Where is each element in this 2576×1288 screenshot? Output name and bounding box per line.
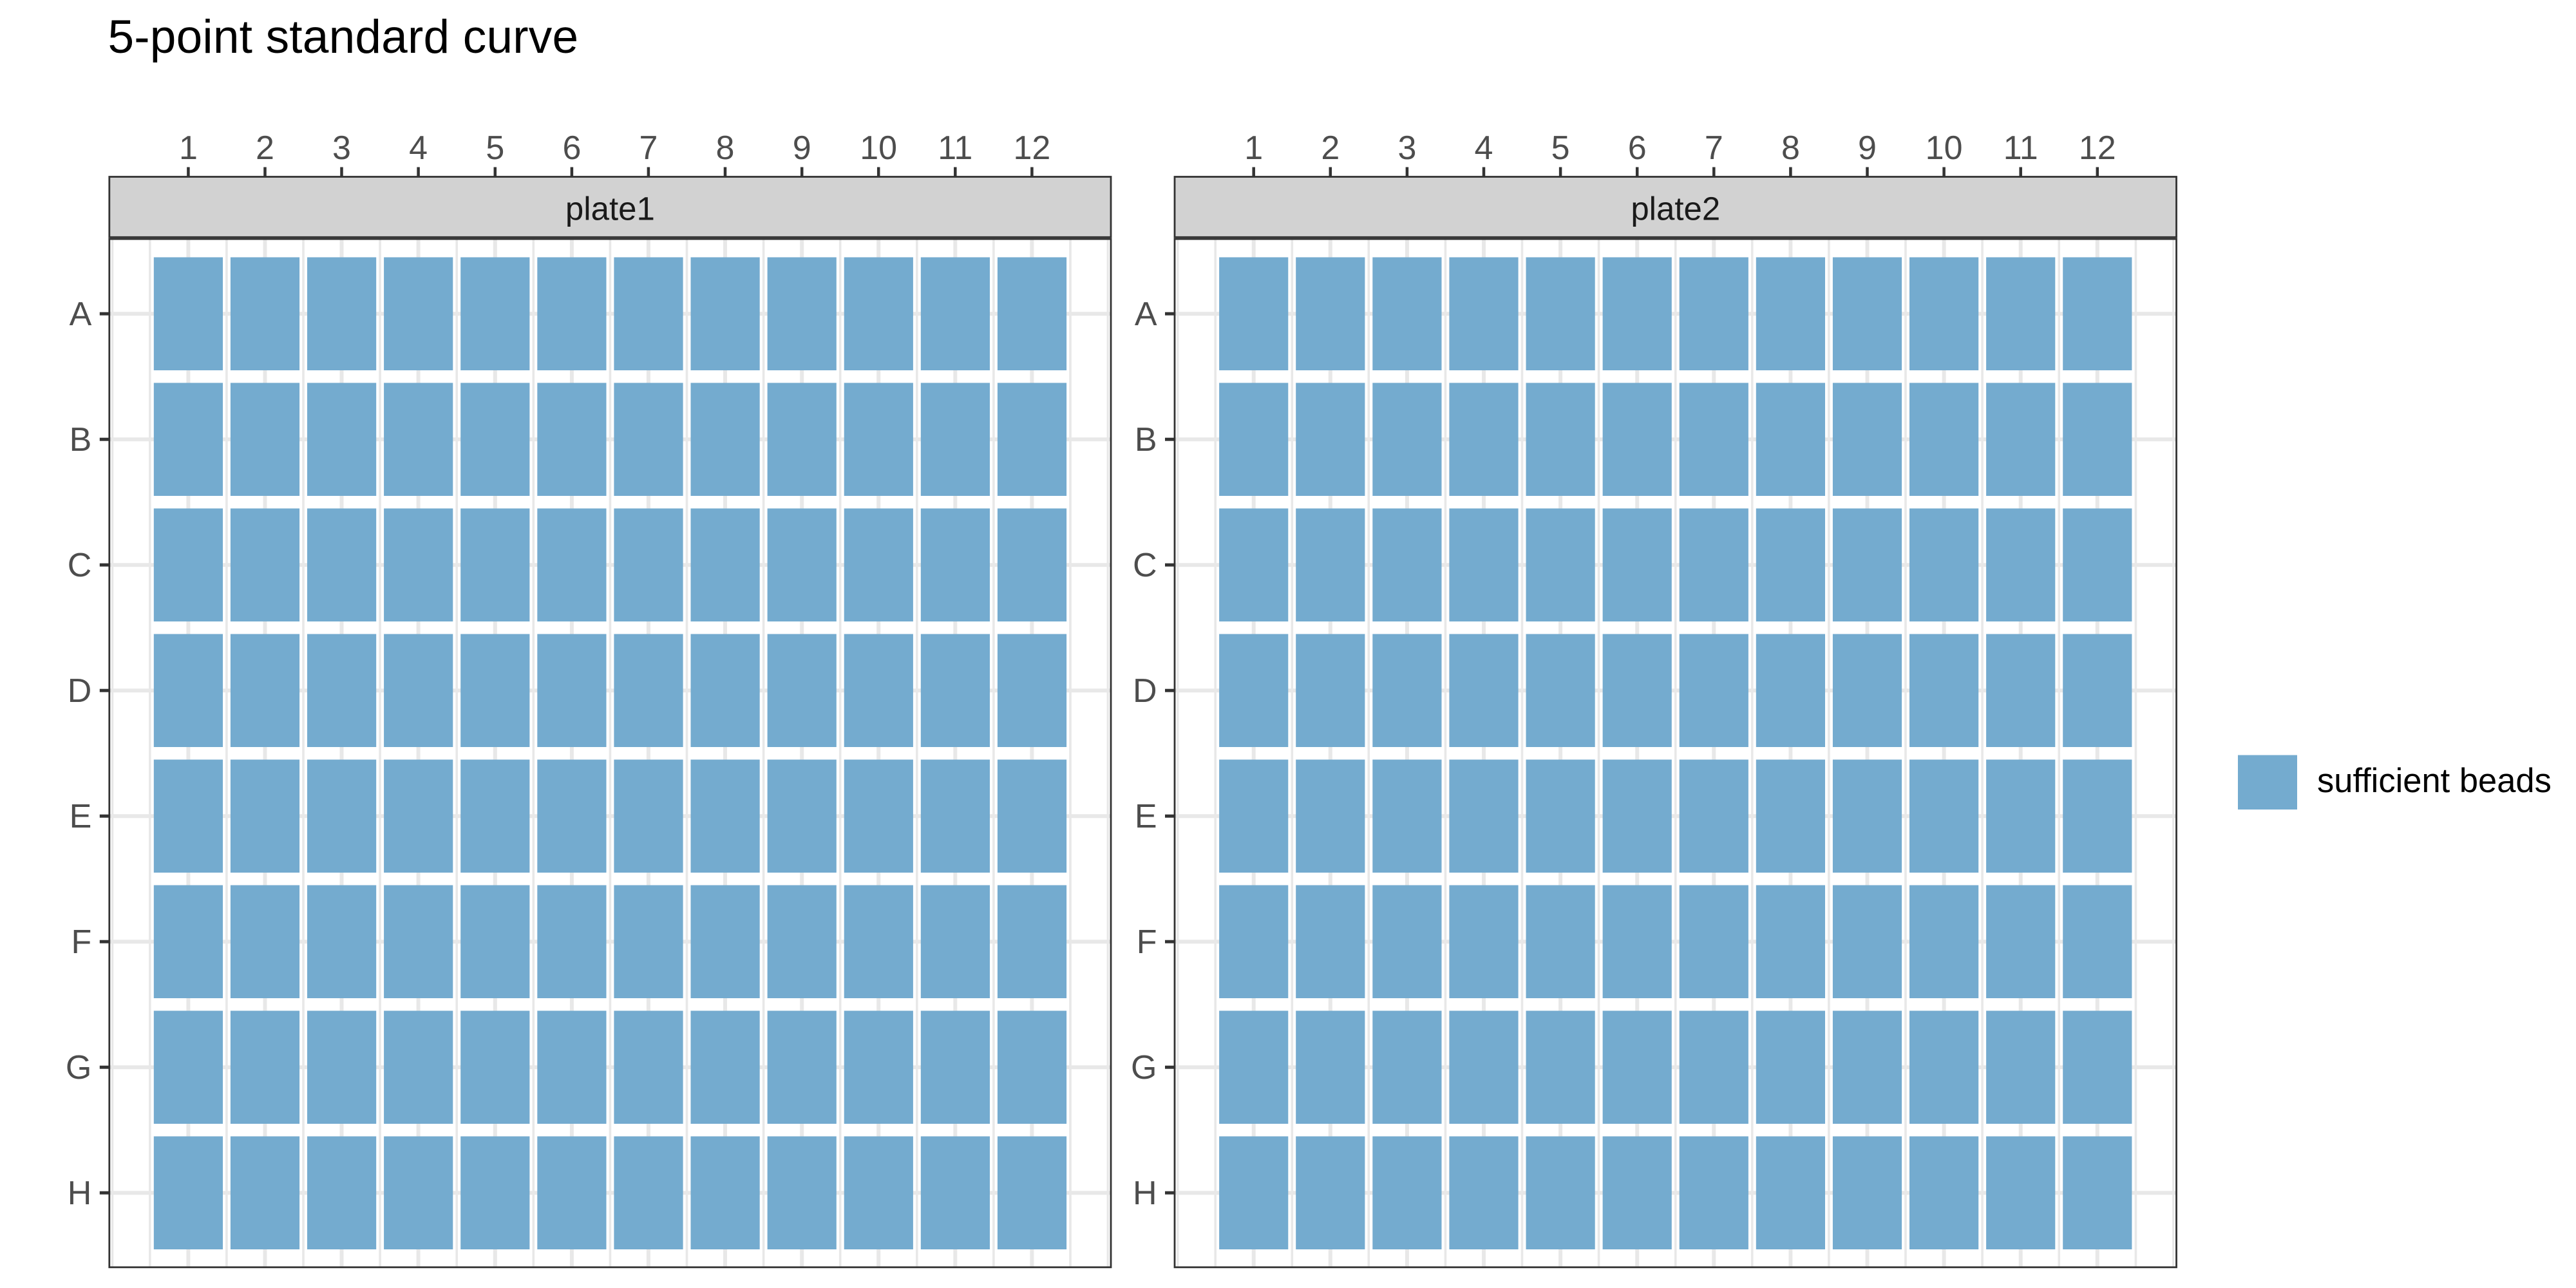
svg-text:8: 8 xyxy=(716,129,735,167)
svg-text:5-point standard curve: 5-point standard curve xyxy=(108,11,579,63)
svg-text:4: 4 xyxy=(1475,129,1493,167)
svg-text:E: E xyxy=(1135,798,1157,835)
svg-text:B: B xyxy=(1135,421,1157,459)
svg-text:10: 10 xyxy=(1926,129,1963,167)
svg-text:9: 9 xyxy=(1858,129,1877,167)
svg-text:5: 5 xyxy=(1551,129,1570,167)
svg-text:6: 6 xyxy=(1628,129,1647,167)
svg-text:2: 2 xyxy=(256,129,274,167)
svg-text:10: 10 xyxy=(860,129,897,167)
svg-text:F: F xyxy=(71,923,92,961)
svg-text:plate1: plate1 xyxy=(565,191,655,227)
svg-text:C: C xyxy=(68,547,92,584)
svg-text:6: 6 xyxy=(562,129,581,167)
svg-text:9: 9 xyxy=(793,129,811,167)
svg-text:D: D xyxy=(68,672,92,710)
svg-text:2: 2 xyxy=(1321,129,1340,167)
svg-text:4: 4 xyxy=(409,129,428,167)
svg-text:8: 8 xyxy=(1781,129,1800,167)
svg-text:H: H xyxy=(68,1175,92,1212)
svg-text:sufficient beads: sufficient beads xyxy=(2317,762,2552,800)
svg-text:H: H xyxy=(1133,1175,1157,1212)
svg-text:G: G xyxy=(66,1049,91,1086)
svg-text:3: 3 xyxy=(332,129,351,167)
svg-text:1: 1 xyxy=(179,129,198,167)
svg-text:F: F xyxy=(1137,923,1157,961)
svg-text:A: A xyxy=(1135,296,1157,333)
svg-text:12: 12 xyxy=(1013,129,1050,167)
svg-text:3: 3 xyxy=(1397,129,1416,167)
svg-text:7: 7 xyxy=(639,129,658,167)
svg-text:D: D xyxy=(1133,672,1157,710)
svg-text:1: 1 xyxy=(1244,129,1263,167)
svg-text:5: 5 xyxy=(486,129,504,167)
svg-text:11: 11 xyxy=(2003,129,2038,167)
svg-text:E: E xyxy=(70,798,92,835)
svg-text:A: A xyxy=(70,296,92,333)
svg-text:plate2: plate2 xyxy=(1631,191,1720,227)
svg-text:12: 12 xyxy=(2079,129,2116,167)
svg-text:7: 7 xyxy=(1705,129,1723,167)
svg-text:11: 11 xyxy=(938,129,972,167)
svg-text:G: G xyxy=(1131,1049,1157,1086)
svg-text:B: B xyxy=(70,421,92,459)
svg-text:C: C xyxy=(1133,547,1157,584)
